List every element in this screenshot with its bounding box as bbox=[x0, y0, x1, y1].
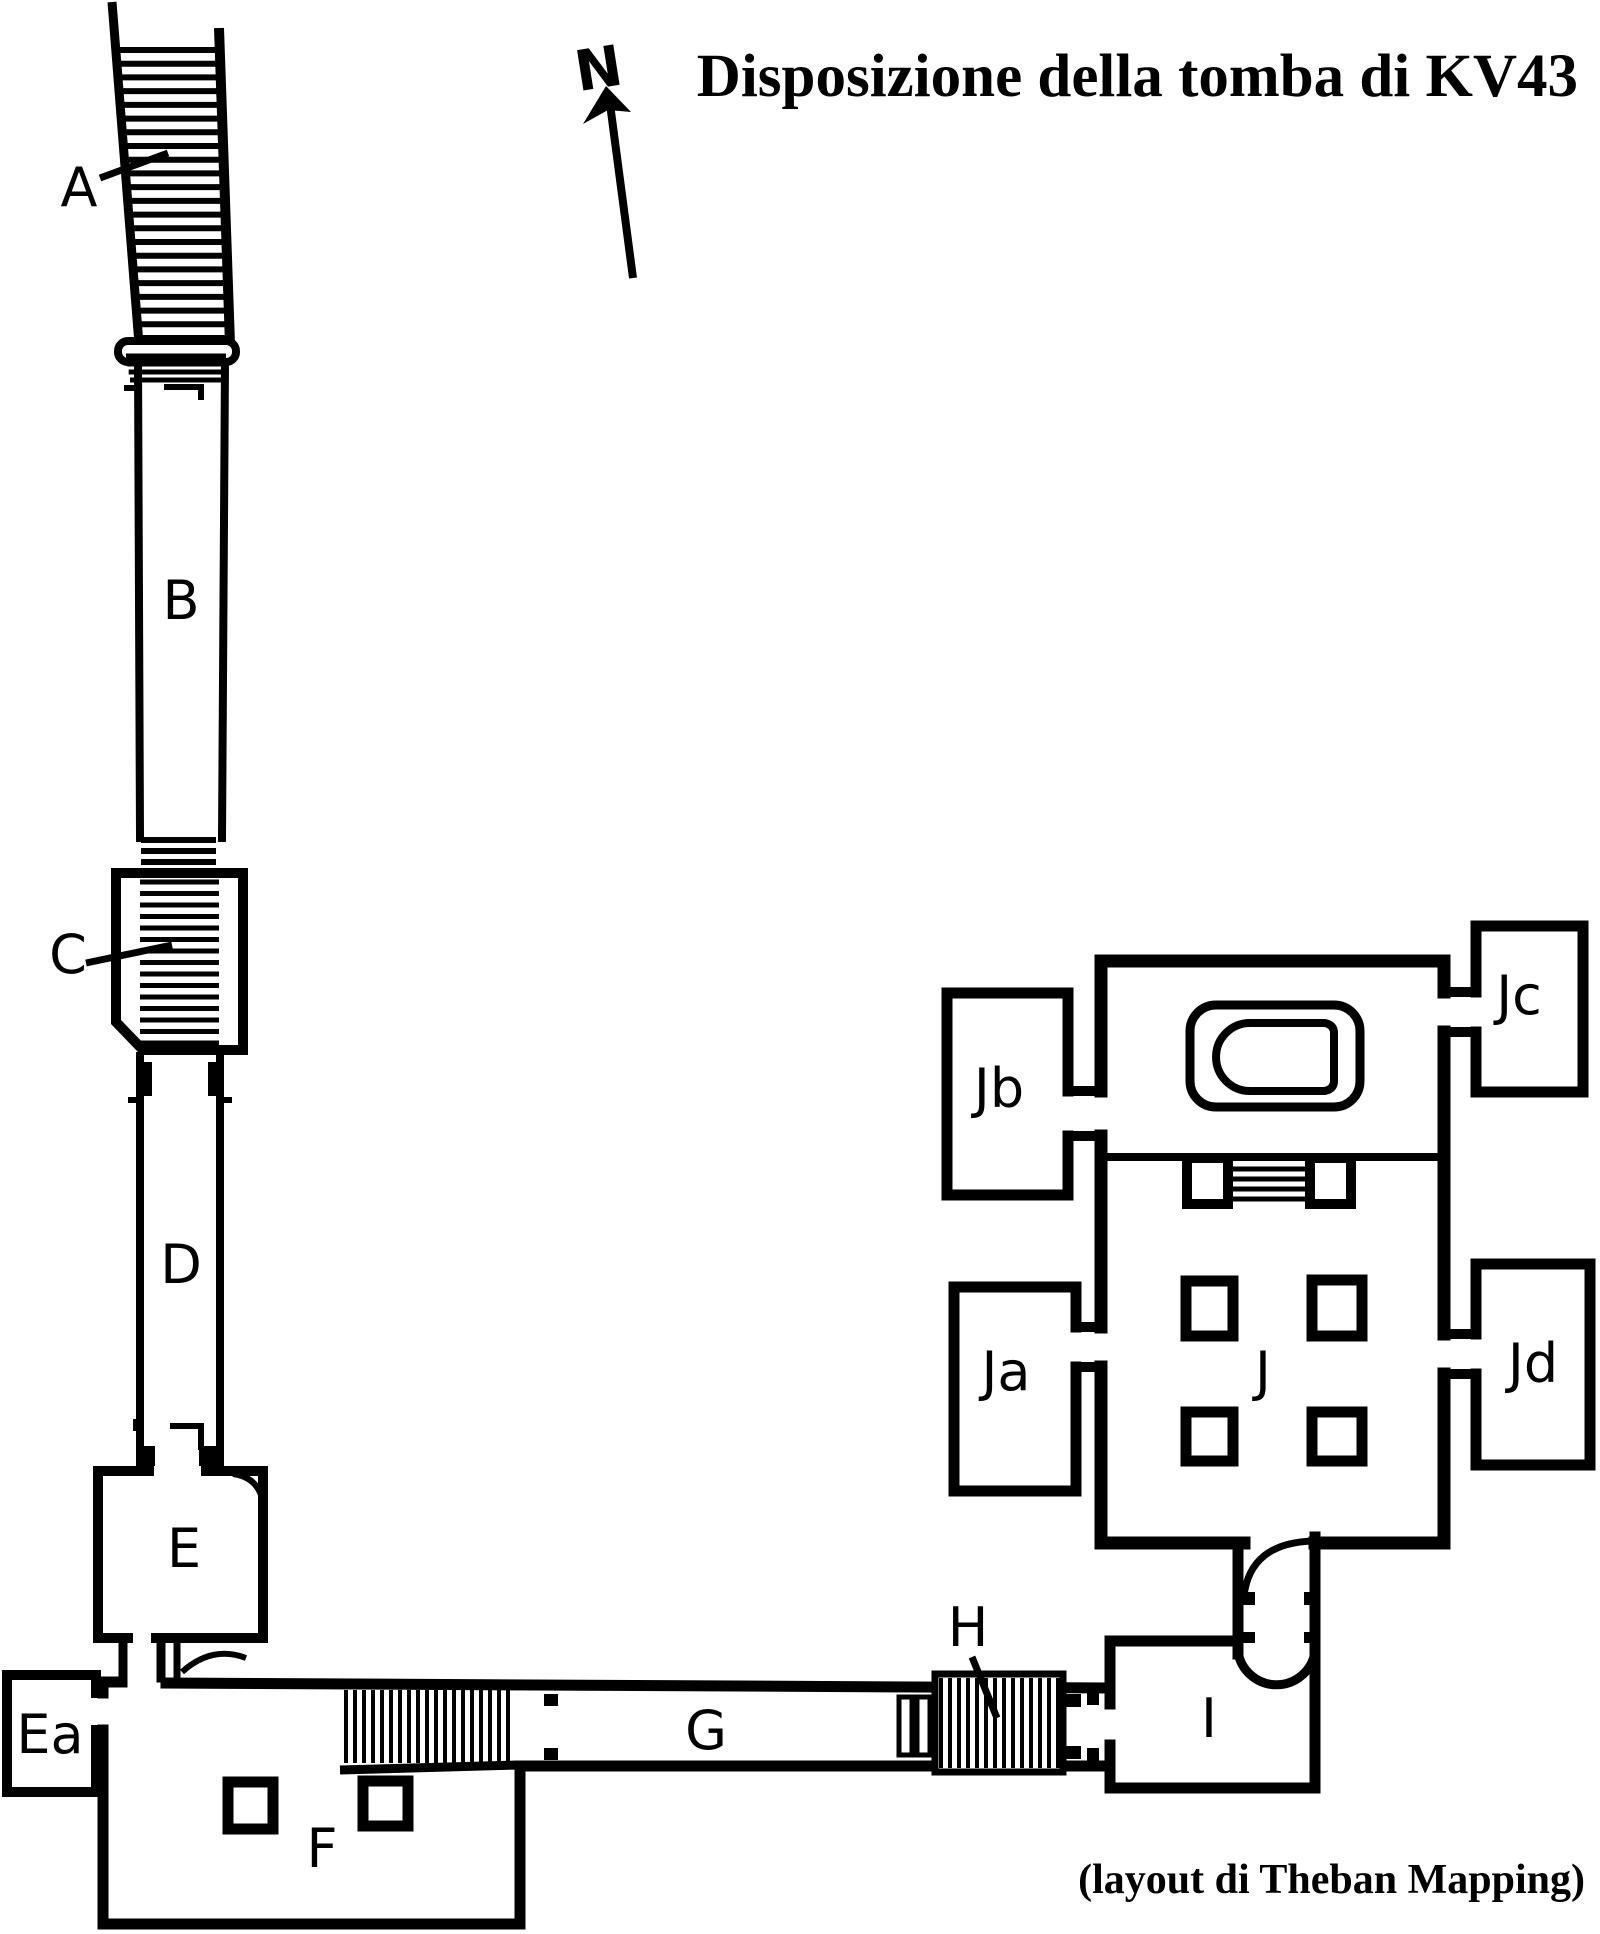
side-chamber-jd: Jd bbox=[1444, 1264, 1590, 1465]
pillar bbox=[1312, 1280, 1362, 1336]
burial-chamber-j: J bbox=[1101, 961, 1444, 1543]
room-label-g: G bbox=[685, 1699, 727, 1762]
doorway-walls bbox=[1068, 1091, 1101, 1136]
side-chamber-jb: Jb bbox=[947, 993, 1101, 1195]
stairway-a: A bbox=[61, 2, 236, 400]
north-arrow: N bbox=[570, 33, 633, 278]
side-chamber-ja: Ja bbox=[954, 1287, 1101, 1491]
corridor-b: B bbox=[138, 362, 225, 838]
pillar bbox=[1186, 1281, 1233, 1336]
stairway-h: H bbox=[935, 1596, 1081, 1772]
stairwell-c: C bbox=[49, 873, 243, 1100]
pillar bbox=[363, 1781, 408, 1826]
stairwell-c-steps bbox=[140, 882, 219, 1043]
door-jamb-mark bbox=[1066, 1694, 1081, 1707]
door-jamb-block bbox=[199, 1446, 218, 1466]
room-label-h: H bbox=[948, 1596, 989, 1659]
door-jamb-mark bbox=[544, 1694, 558, 1706]
pillar bbox=[228, 1782, 273, 1829]
door-swing-arc bbox=[1244, 1541, 1313, 1596]
door-jamb-bar bbox=[899, 1697, 912, 1755]
stair-a-steps bbox=[116, 50, 229, 338]
pillar bbox=[1312, 1412, 1362, 1461]
ramp-edge-line bbox=[340, 1765, 519, 1770]
north-arrow-shaft bbox=[610, 104, 633, 278]
kv43-tomb-plan: Disposizione della tomba di KV43 (layout… bbox=[0, 0, 1600, 1934]
room-label-ja: Ja bbox=[978, 1340, 1030, 1403]
chamber-i: I bbox=[1087, 1641, 1314, 1788]
page-title: Disposizione della tomba di KV43 bbox=[697, 43, 1578, 110]
door-jamb-mark bbox=[133, 1419, 143, 1431]
room-label-b: B bbox=[162, 569, 199, 632]
ramp-hatching-f bbox=[346, 1690, 508, 1763]
door-jamb-mark bbox=[1066, 1746, 1081, 1759]
side-chamber-ea: Ea bbox=[7, 1675, 96, 1792]
room-label-a: A bbox=[61, 156, 98, 219]
door-jamb-mark bbox=[1304, 1632, 1316, 1643]
hall-f-outline bbox=[103, 1682, 520, 1924]
door-swing-arc bbox=[182, 1654, 246, 1672]
room-label-jd: Jd bbox=[1505, 1332, 1558, 1395]
room-label-d: D bbox=[160, 1233, 202, 1296]
passage-j-to-i bbox=[1238, 1537, 1316, 1788]
stair-b-to-c bbox=[141, 840, 216, 862]
side-chamber-jc: Jc bbox=[1444, 926, 1583, 1092]
door-jamb-mark bbox=[1087, 1748, 1099, 1761]
page: Disposizione della tomba di KV43 (layout… bbox=[0, 0, 1600, 1934]
corridor-d: D bbox=[133, 1056, 220, 1466]
door-jamb-mark bbox=[1243, 1632, 1255, 1643]
chamber-e: E bbox=[98, 1471, 264, 1683]
room-label-f: F bbox=[306, 1817, 337, 1880]
stairway-h-outline bbox=[935, 1674, 1063, 1772]
room-label-j: J bbox=[1252, 1340, 1271, 1403]
corridor-b-right-wall bbox=[222, 362, 225, 838]
pillared-hall-f: F bbox=[103, 1682, 520, 1924]
step-block bbox=[1310, 1158, 1351, 1204]
credit-note: (layout di Theban Mapping) bbox=[1078, 1857, 1585, 1903]
door-jamb-bar bbox=[917, 1697, 930, 1755]
room-label-i: I bbox=[1201, 1687, 1217, 1750]
room-label-c: C bbox=[49, 923, 87, 986]
room-label-jb: Jb bbox=[971, 1057, 1024, 1120]
door-jamb-mark bbox=[1087, 1692, 1099, 1705]
room-label-jc: Jc bbox=[1493, 964, 1542, 1027]
north-label: N bbox=[570, 33, 626, 105]
door-jamb-mark bbox=[1304, 1592, 1316, 1605]
door-jamb-mark bbox=[544, 1748, 558, 1760]
step-block bbox=[1187, 1158, 1228, 1204]
door-jamb-block bbox=[139, 1446, 155, 1466]
room-label-e: E bbox=[167, 1517, 201, 1580]
pillar bbox=[1186, 1412, 1233, 1461]
passage-round-end bbox=[1238, 1652, 1315, 1685]
crypt-steps bbox=[1232, 1169, 1306, 1199]
corridor-b-left-wall bbox=[138, 362, 140, 838]
room-label-ea: Ea bbox=[16, 1703, 83, 1766]
sarcophagus-inner bbox=[1216, 1023, 1334, 1091]
